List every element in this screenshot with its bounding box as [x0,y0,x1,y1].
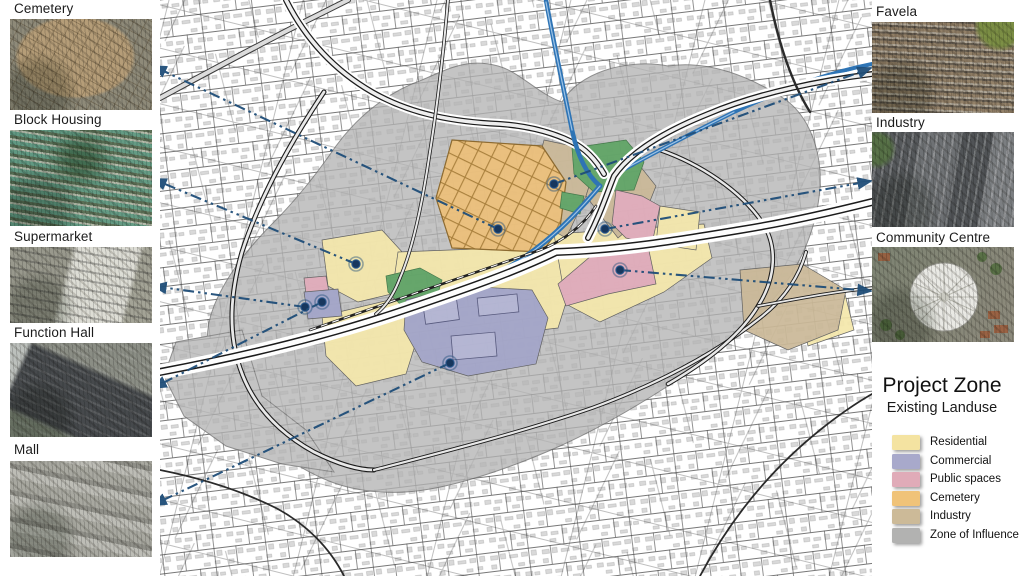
photo-label: Function Hall [14,325,94,340]
location-marker-block-housing [352,260,360,268]
commercial-swatch [892,454,920,469]
landuse-presentation-slide: { "left_panel": { "items": [ {"label": "… [0,0,1024,576]
legend-row-zone-of-influence: Zone of Influence [866,528,1018,543]
block-housing-photo [10,130,152,226]
public-spaces-swatch [892,472,920,487]
legend-label: Residential [930,436,987,448]
function-hall-photo [10,343,152,437]
location-marker-community-centre [616,266,624,274]
industry-photo [872,132,1014,227]
residential-swatch [892,435,920,450]
supermarket-photo [10,247,152,323]
legend-row-industry: Industry [866,509,1018,524]
cemetery-photo [10,19,152,110]
legend-subtitle: Existing Landuse [866,400,1018,416]
industry-swatch [892,509,920,524]
location-marker-industry [601,225,609,233]
photo-label: Favela [876,4,917,19]
legend-row-commercial: Commercial [866,454,1018,469]
legend-row-residential: Residential [866,435,1018,450]
favela-photo [872,22,1014,113]
legend-row-public-spaces: Public spaces [866,472,1018,487]
photo-label: Industry [876,115,925,130]
photo-label: Block Housing [14,112,102,127]
zone-of-influence-swatch [892,528,920,543]
legend-row-cemetery: Cemetery [866,491,1018,506]
photo-label: Cemetery [14,1,73,16]
location-marker-function-hall [318,298,326,306]
legend-label: Industry [930,510,971,522]
location-marker-favela [550,180,558,188]
dome-illustration [872,247,1014,342]
location-marker-mall [446,359,454,367]
legend-label: Zone of Influence [930,529,1019,541]
legend-label: Public spaces [930,473,1001,485]
location-marker-cemetery [494,225,502,233]
mall-photo [10,461,152,557]
map-legend: Project Zone Existing Landuse Residentia… [866,374,1018,546]
legend-title: Project Zone [866,374,1018,398]
photo-label: Supermarket [14,229,92,244]
photo-label: Mall [14,442,39,457]
community-centre-photo [872,247,1014,342]
legend-rows: Residential Commercial Public spaces Cem… [866,435,1018,543]
legend-label: Commercial [930,455,991,467]
legend-label: Cemetery [930,492,980,504]
photo-label: Community Centre [876,230,990,245]
cemetery-swatch [892,491,920,506]
